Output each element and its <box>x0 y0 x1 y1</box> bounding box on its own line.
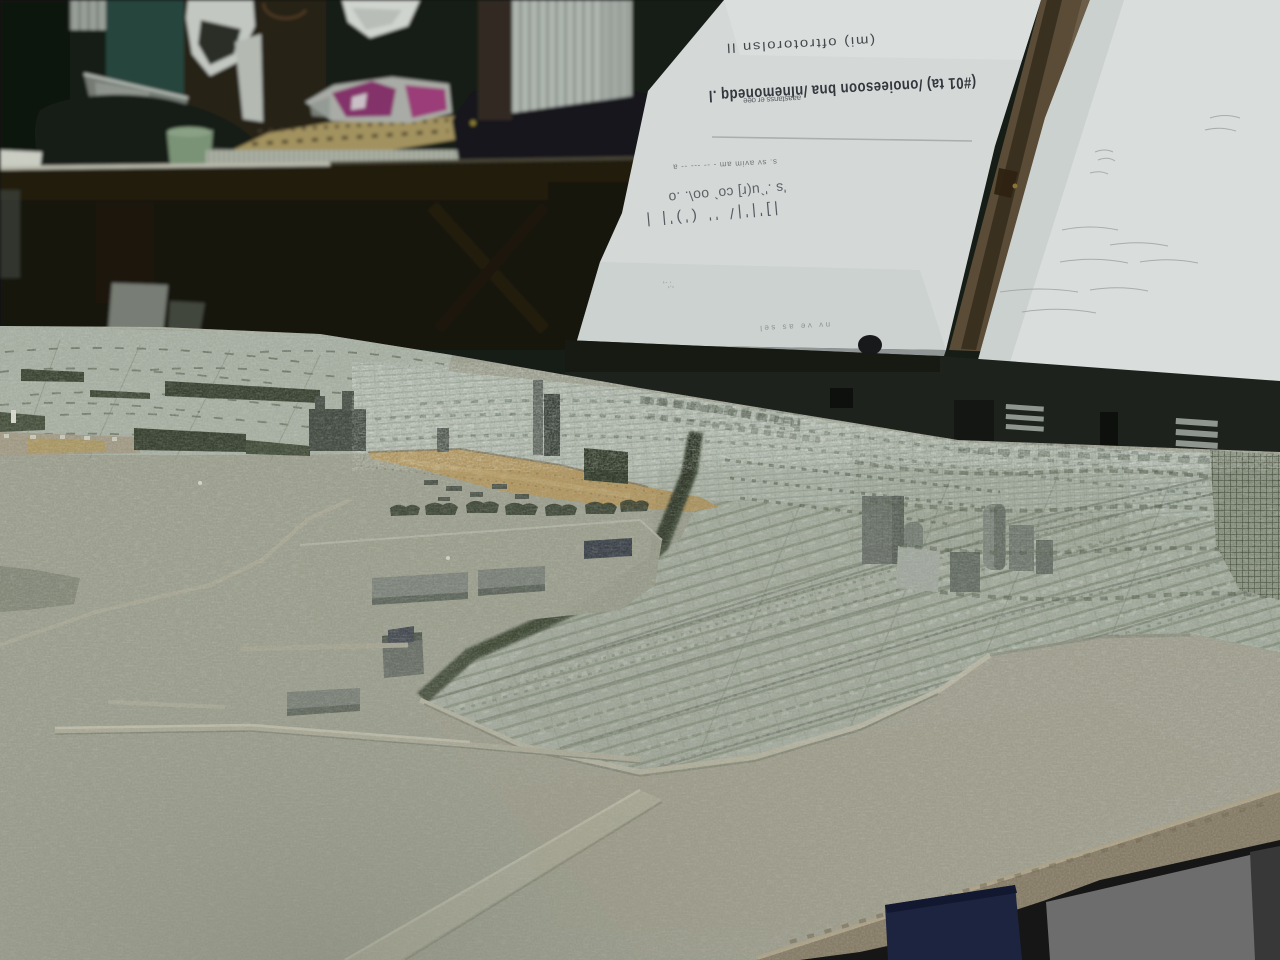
svg-text:':'.,: ':'., <box>662 280 674 291</box>
